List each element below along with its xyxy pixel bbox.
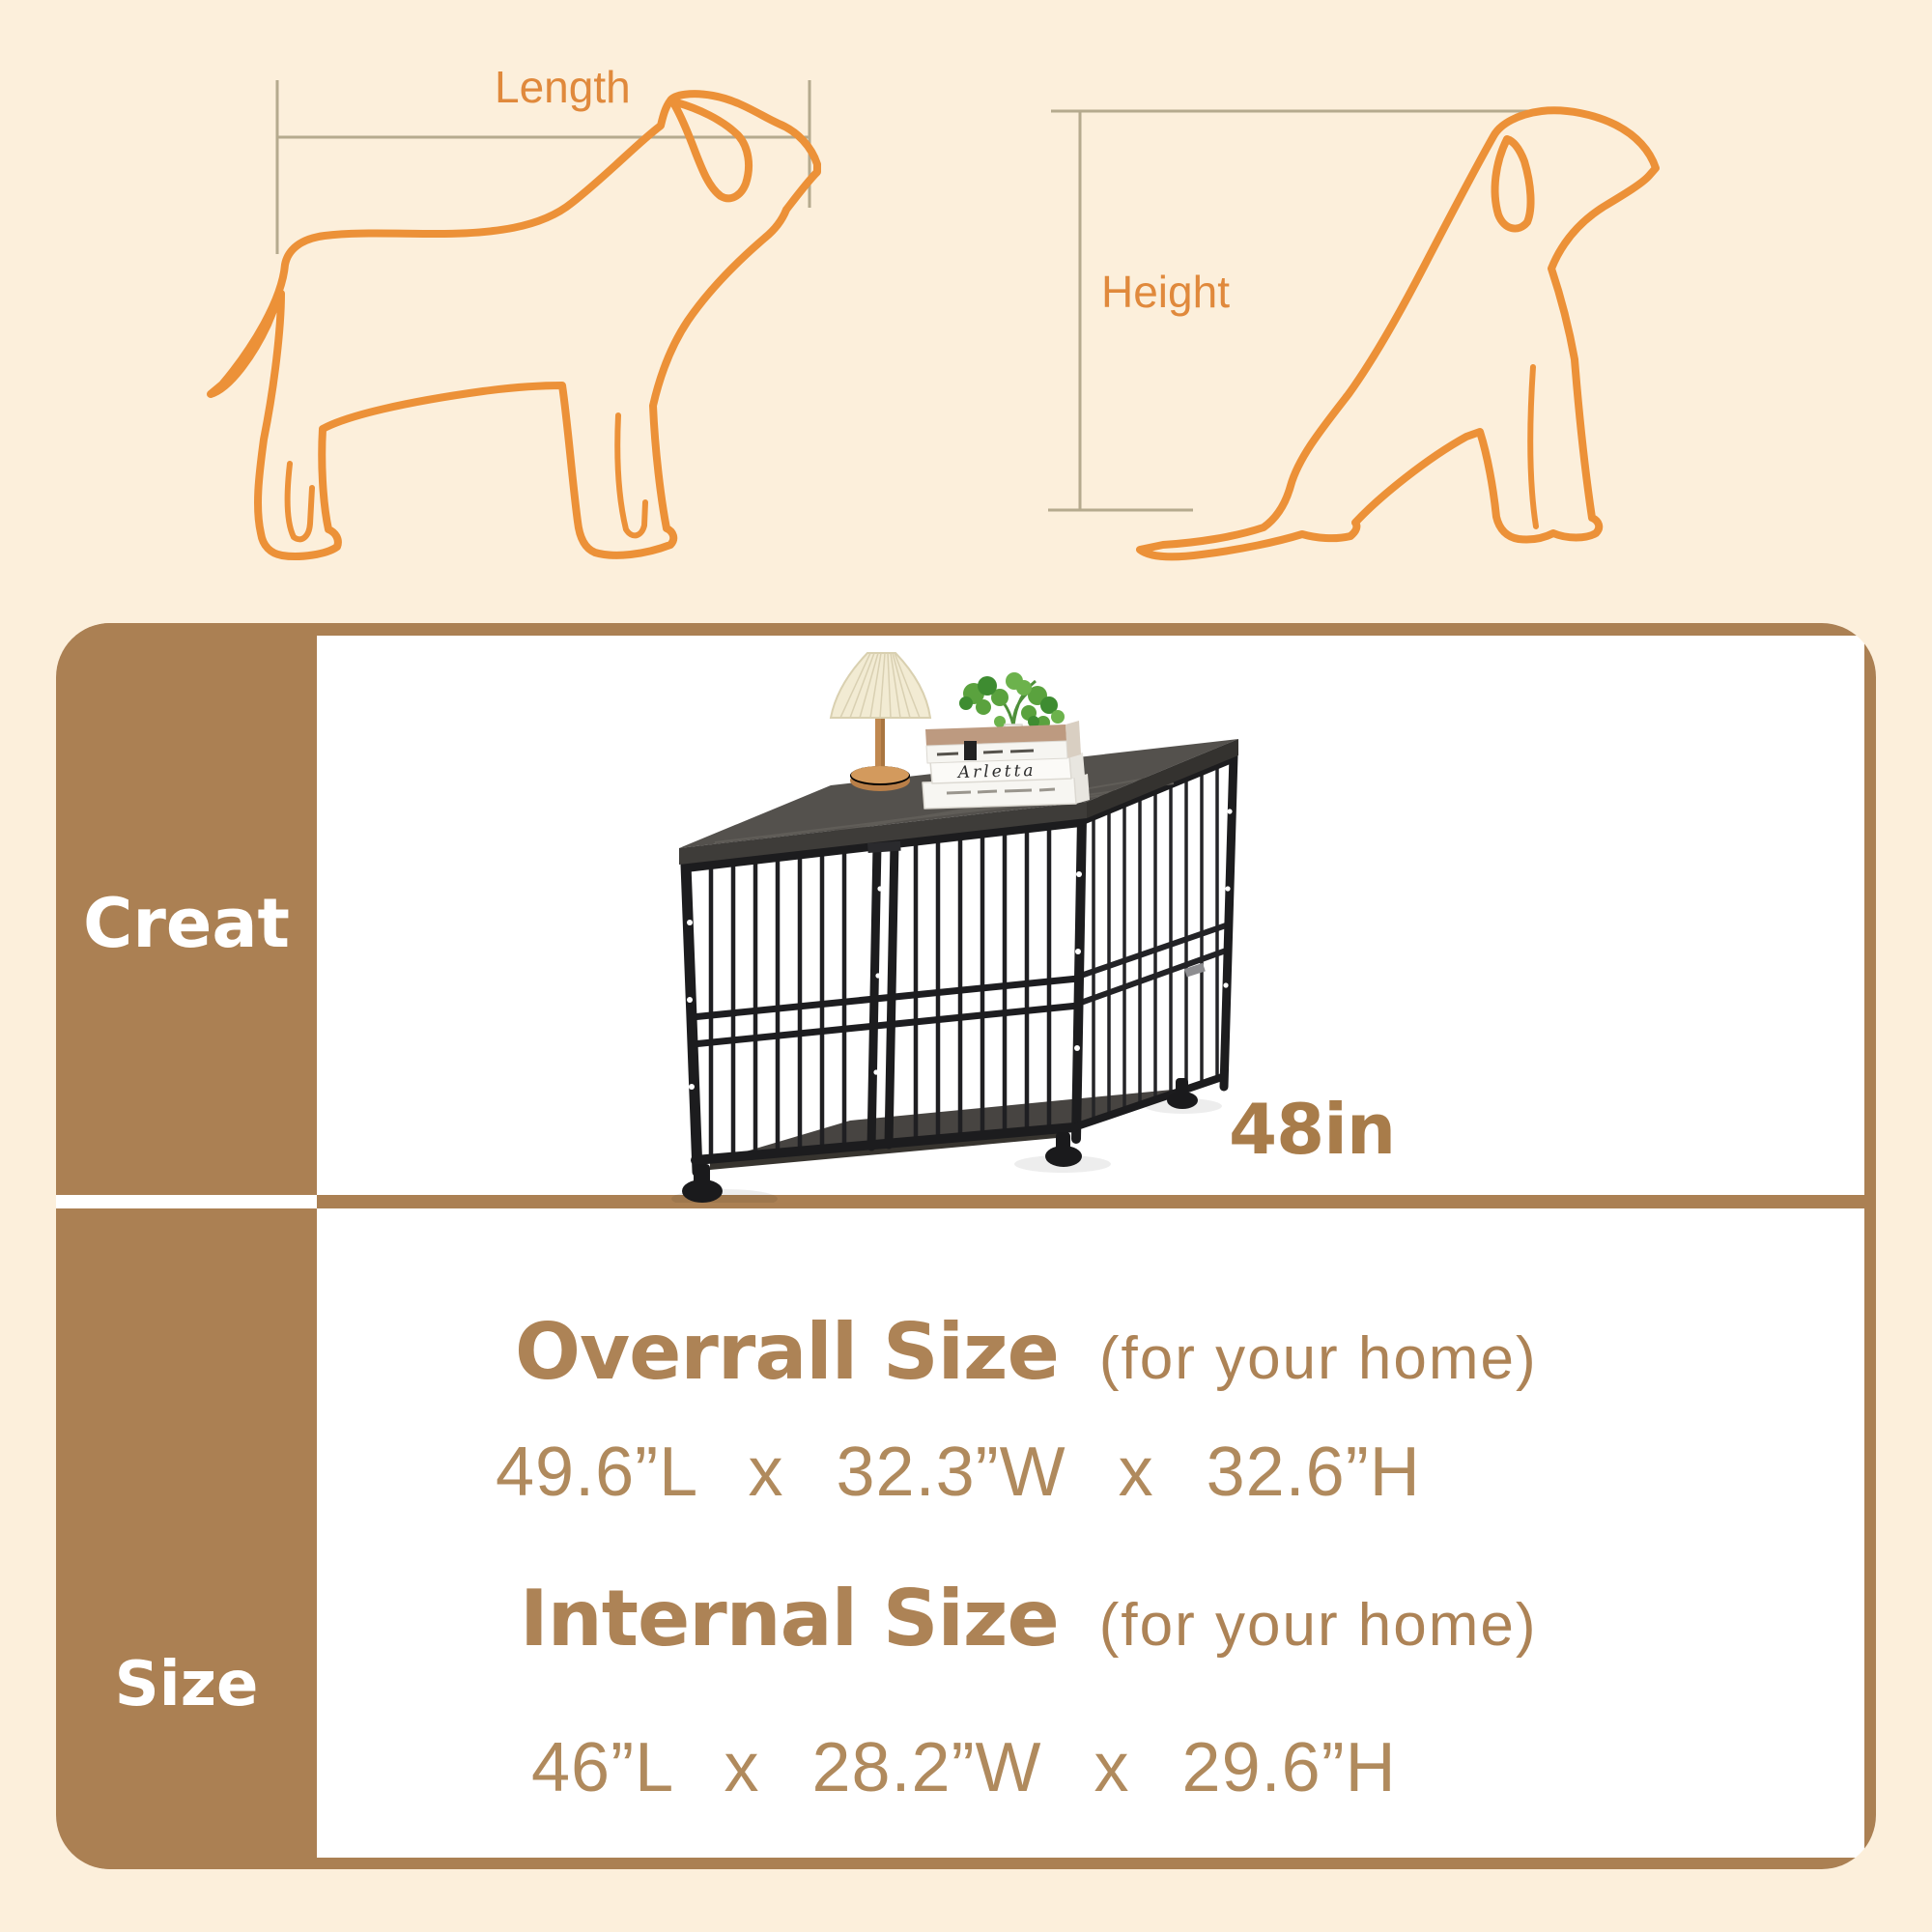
internal-size-note: (for your home) xyxy=(1099,1592,1538,1659)
internal-size-title: Internal Size xyxy=(520,1574,1059,1663)
sitting-dog-outline xyxy=(1140,110,1656,556)
overall-size-dimensions: 49.6”L x 32.3”W x 32.6”H xyxy=(496,1433,1421,1512)
lamp-icon xyxy=(831,653,930,791)
dog-crate-product-image: Arletta xyxy=(618,633,1294,1203)
crate-side-rails xyxy=(1078,924,1229,1004)
height-label: Height xyxy=(1101,267,1230,317)
size-info-panel: Creat Size xyxy=(56,623,1876,1869)
internal-size-heading: Internal Size(for your home) xyxy=(520,1574,1538,1663)
sidebar-row-gap xyxy=(56,1195,317,1208)
overall-size-heading: Overrall Size(for your home) xyxy=(515,1307,1538,1397)
size-row-label: Size xyxy=(56,1649,317,1720)
crate-front-rails xyxy=(692,979,1078,1044)
internal-size-dimensions: 46”L x 28.2”W x 29.6”H xyxy=(531,1728,1397,1807)
crate-size-badge: 48in xyxy=(1229,1089,1395,1170)
crate-row-label: Creat xyxy=(56,884,317,963)
overall-size-title: Overrall Size xyxy=(515,1307,1059,1397)
book-title: Arletta xyxy=(956,761,1037,782)
overall-size-note: (for your home) xyxy=(1099,1325,1538,1392)
length-label: Length xyxy=(495,62,631,112)
crate-side-bars xyxy=(1094,765,1217,1121)
dog-measure-diagram: Length Height xyxy=(0,0,1932,628)
book-stack: Arletta xyxy=(923,721,1090,809)
infographic-page: Length Height Creat Size xyxy=(0,0,1932,1932)
panel-border-right xyxy=(1864,623,1876,1869)
panel-border-bottom xyxy=(56,1858,1876,1869)
standing-dog-outline xyxy=(211,94,817,556)
